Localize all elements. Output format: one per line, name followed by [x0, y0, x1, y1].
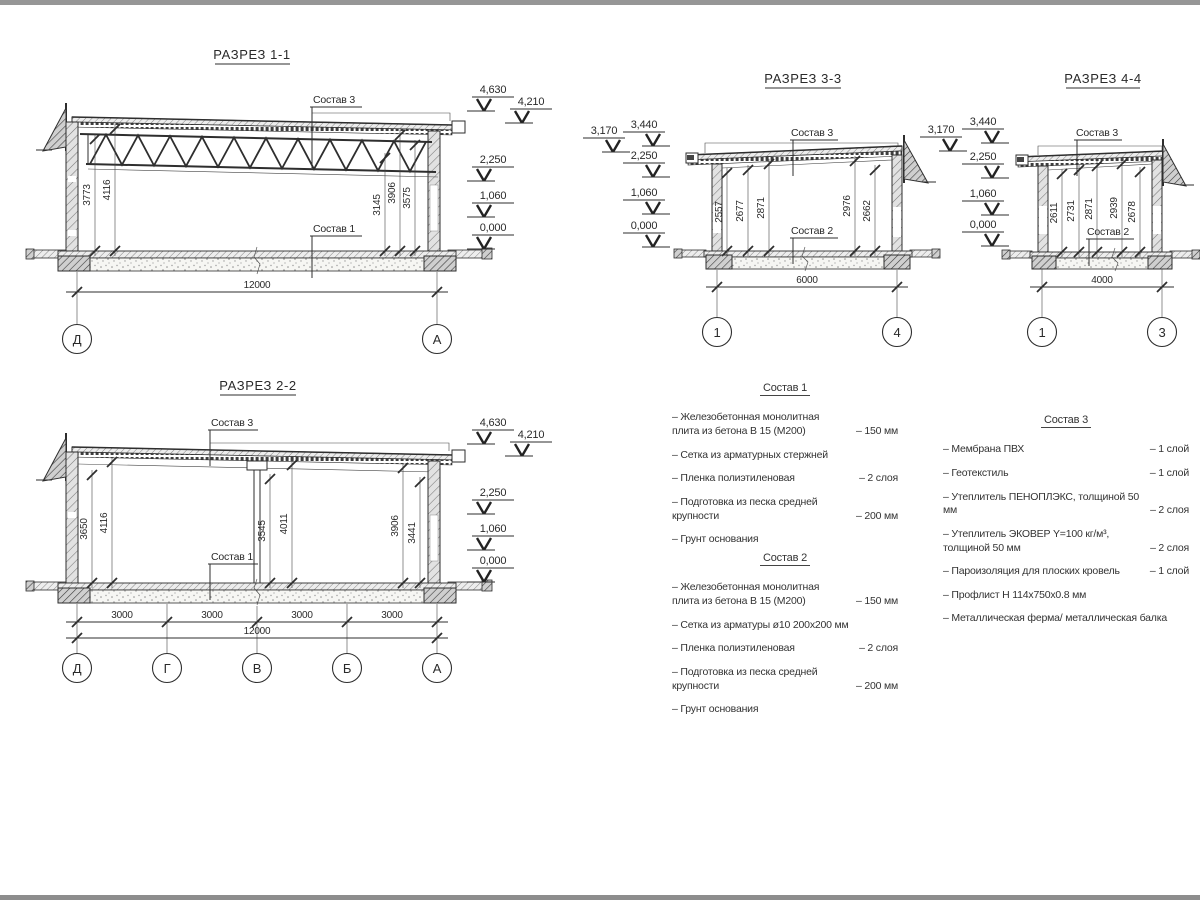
window-opening: [430, 515, 438, 561]
elevation-text: 2,250: [631, 150, 658, 162]
roof-assembly: [72, 443, 465, 472]
roof-end-cap: [452, 121, 465, 133]
overall-dim-text: 4000: [1091, 275, 1113, 286]
dim-text: 3650: [79, 518, 90, 540]
elevation-text: 0,000: [480, 555, 507, 567]
list-item: – Подготовка из песка средней крупности–…: [672, 496, 898, 523]
overall-dim-text: 12000: [244, 626, 271, 637]
section-1-1: РАЗРЕЗ 1-1: [26, 47, 552, 354]
list-item: – Сетка из арматурных стержней: [672, 449, 898, 463]
elevation-text: 4,630: [480, 84, 507, 96]
list-item: – Подготовка из песка средней крупности–…: [672, 666, 898, 693]
elevation-marks: 3,170 3,440 2,250 1,060 0,000: [583, 119, 670, 247]
composition-list-3: Состав 3 – Мембрана ПВХ– 1 слой – Геотек…: [943, 413, 1189, 636]
roof-end-cap: [452, 450, 465, 462]
callout-label: Состав 2: [791, 225, 833, 237]
list-item: – Геотекстиль– 1 слой: [943, 467, 1189, 481]
span-dim-text: 3000: [381, 610, 403, 621]
callout-label: Состав 1: [211, 551, 253, 563]
wall-opening: [68, 176, 76, 182]
axis-bubbles: Д А: [63, 325, 452, 354]
callout-label: Состав 1: [313, 223, 355, 235]
floor-slab: [674, 247, 940, 271]
elevation-text: 1,060: [970, 188, 997, 200]
bottom-dimension: 12000: [66, 272, 448, 324]
list-item: – Пленка полиэтиленовая– 2 слоя: [672, 472, 898, 486]
dim-text: 2677: [735, 200, 746, 222]
dim-text: 2611: [1049, 202, 1060, 223]
list-item: – Железобетонная монолитная плита из бет…: [672, 581, 898, 608]
elevation-text: 2,250: [970, 151, 997, 163]
span-dim-text: 3000: [201, 610, 223, 621]
elevation-text: 4,630: [480, 417, 507, 429]
list-item: – Грунт основания: [672, 533, 898, 547]
elevation-marks: 4,630 4,210 2,250 1,060 0,000: [467, 84, 552, 249]
roof-end-cap-core: [687, 155, 694, 160]
wall-opening: [68, 512, 76, 518]
dim-text: 3906: [390, 515, 401, 537]
elevation-text: 1,060: [631, 187, 658, 199]
list-item: – Пароизоляция для плоских кровель– 1 сл…: [943, 565, 1189, 579]
elevation-text: 3,440: [970, 116, 997, 128]
elevation-text: 0,000: [631, 220, 658, 232]
dim-text: 4116: [102, 179, 113, 200]
composition-2-title: Состав 2: [672, 551, 898, 565]
section-3-3: РАЗРЕЗ 3-3 3,170 3,440 2,250 1,060 0,000: [583, 71, 940, 347]
roof-assembly: [72, 113, 465, 135]
composition-list-1: Состав 1 – Железобетонная монолитная пли…: [672, 381, 898, 557]
dim-text: 2939: [1109, 197, 1120, 219]
walls: [66, 452, 440, 583]
section-4-4: РАЗРЕЗ 4-4 3,170 3,440 2,250 1,060 0,000: [920, 71, 1200, 347]
interior-dimensions: 3650 4116 3545 4011 3906 3441: [79, 457, 425, 588]
roof-truss: [80, 134, 438, 177]
axis-label: В: [253, 661, 261, 676]
parapet-flag-left: [36, 433, 66, 481]
wall-opening: [68, 230, 76, 236]
section-3-3-title: РАЗРЕЗ 3-3: [764, 71, 842, 86]
axis-label: А: [433, 332, 442, 347]
list-item: – Утеплитель ПЕНОПЛЭКС, толщиной 50 мм– …: [943, 491, 1189, 518]
parapet-flag-right: [904, 135, 936, 183]
interior-dimensions: 2611 2731 2871 2939 2678: [1049, 159, 1145, 257]
overall-dim-text: 6000: [796, 275, 818, 286]
bottom-dimension: 6000: [706, 270, 908, 317]
wall-opening: [1153, 206, 1161, 234]
elevation-text: 1,060: [480, 190, 507, 202]
span-dim-text: 3000: [291, 610, 313, 621]
callout-label: Состав 3: [791, 127, 833, 139]
dim-text: 3575: [402, 187, 413, 209]
elevation-text: 3,170: [591, 125, 618, 137]
axis-label: Д: [73, 332, 82, 347]
bottom-dimension: 3000 3000 3000 3000 12000: [66, 604, 448, 653]
elevation-text: 4,210: [518, 429, 545, 441]
section-4-4-title: РАЗРЕЗ 4-4: [1064, 71, 1142, 86]
dim-text: 2976: [842, 195, 853, 217]
list-item: – Мембрана ПВХ– 1 слой: [943, 443, 1189, 457]
list-item: – Грунт основания: [672, 703, 898, 717]
list-item: – Железобетонная монолитная плита из бет…: [672, 411, 898, 438]
list-item: – Металлическая ферма/ металлическая бал…: [943, 612, 1189, 626]
elevation-text: 2,250: [480, 487, 507, 499]
dim-text: 2871: [1084, 198, 1095, 220]
axis-bubbles: 1 3: [1028, 318, 1177, 347]
parapet-flag-right: [1163, 139, 1194, 186]
elevation-text: 3,440: [631, 119, 658, 131]
overall-dim-text: 12000: [244, 280, 271, 291]
dim-text: 2662: [862, 200, 873, 222]
wall-opening: [1039, 206, 1047, 234]
dim-text: 4116: [99, 512, 110, 533]
section-2-2: РАЗРЕЗ 2-2: [26, 378, 552, 683]
axis-label: Г: [164, 661, 171, 676]
list-item: – Профлист Н 114х750х0.8 мм: [943, 589, 1189, 603]
axis-label: 4: [893, 325, 900, 340]
section-2-2-title: РАЗРЕЗ 2-2: [219, 378, 297, 393]
dim-text: 4011: [279, 513, 290, 534]
composition-3-title: Состав 3: [943, 413, 1189, 427]
axis-label: Б: [343, 661, 351, 676]
axis-label: А: [433, 661, 442, 676]
interior-dimensions: 2557 2677 2871 2976 2662: [714, 156, 880, 256]
floor-slab: [26, 579, 492, 605]
parapet-flag-left: [36, 103, 66, 151]
dim-text: 3906: [387, 182, 398, 204]
elevation-text: 0,000: [480, 222, 507, 234]
axis-label: Д: [73, 661, 82, 676]
roof-end-cap-core: [1017, 157, 1024, 162]
list-item: – Утеплитель ЭКОВЕР Y=100 кг/м³, толщино…: [943, 528, 1189, 555]
dim-text: 3145: [372, 194, 383, 216]
list-item: – Сетка из арматуры ø10 200х200 мм: [672, 619, 898, 633]
dim-text: 3773: [82, 184, 93, 206]
bottom-dimension: 4000: [1030, 269, 1174, 317]
dim-text: 2678: [1127, 201, 1138, 223]
elevation-text: 3,170: [928, 124, 955, 136]
axis-bubbles: Д Г В Б А: [63, 654, 452, 683]
composition-1-title: Состав 1: [672, 381, 898, 395]
dim-text: 2871: [756, 197, 767, 219]
composition-list-2: Состав 2 – Железобетонная монолитная пли…: [672, 551, 898, 727]
callout-label: Состав 3: [313, 94, 355, 106]
dim-text: 3441: [407, 522, 418, 544]
wall-opening: [893, 207, 901, 237]
floor-slab: [1002, 248, 1200, 271]
column-capital: [247, 461, 267, 470]
elevation-marks: 3,170 3,440 2,250 1,060 0,000: [920, 116, 1009, 246]
callout-label: Состав 2: [1087, 226, 1129, 238]
drawing-sheet: РАЗРЕЗ 1-1: [0, 0, 1200, 900]
section-1-1-title: РАЗРЕЗ 1-1: [213, 47, 291, 62]
axis-label: 1: [1038, 325, 1045, 340]
list-item: – Пленка полиэтиленовая– 2 слоя: [672, 642, 898, 656]
span-dim-text: 3000: [111, 610, 133, 621]
elevation-text: 2,250: [480, 154, 507, 166]
elevation-marks: 4,630 4,210 2,250 1,060 0,000: [467, 417, 552, 582]
axis-bubbles: 1 4: [703, 318, 912, 347]
callout-label: Состав 3: [211, 417, 253, 429]
dim-text: 2557: [714, 201, 725, 223]
axis-label: 1: [713, 325, 720, 340]
dim-text: 3545: [257, 520, 268, 542]
dim-text: 2731: [1066, 200, 1077, 222]
callout-label: Состав 3: [1076, 127, 1118, 139]
axis-label: 3: [1158, 325, 1165, 340]
elevation-text: 1,060: [480, 523, 507, 535]
window-opening: [430, 185, 438, 231]
elevation-text: 0,000: [970, 219, 997, 231]
elevation-text: 4,210: [518, 96, 545, 108]
